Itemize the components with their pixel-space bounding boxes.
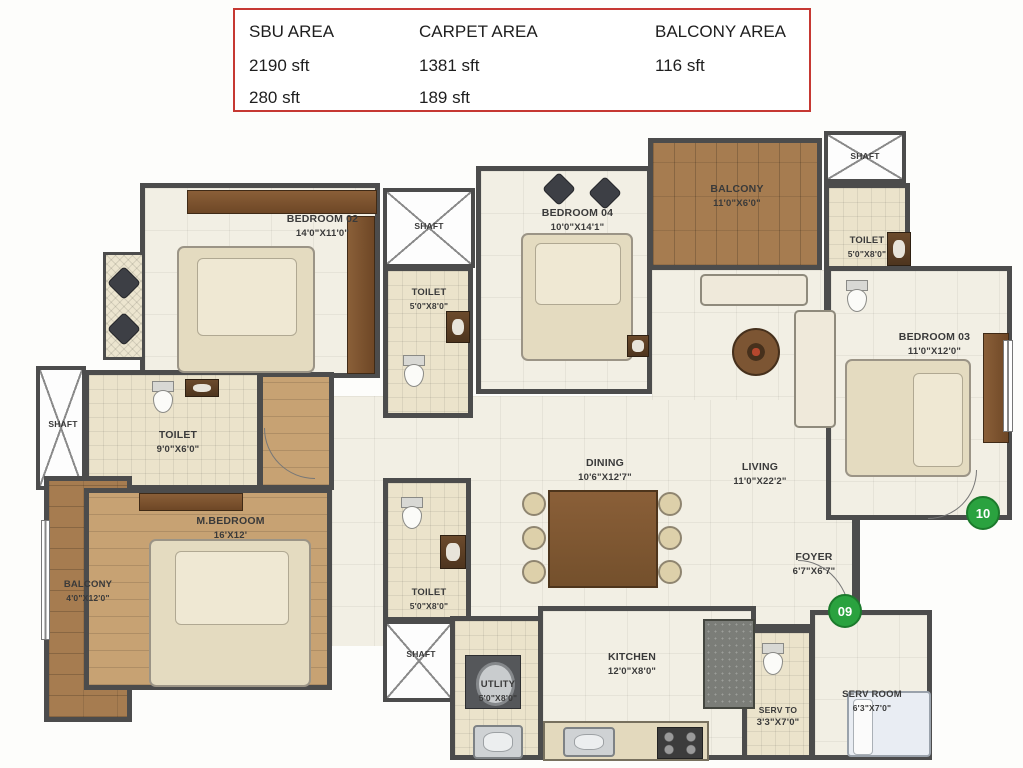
legend-header-balcony: BALCONY AREA xyxy=(655,22,786,42)
seat-cushion xyxy=(107,312,141,346)
unit-marker-09: 09 xyxy=(828,594,862,628)
sofa xyxy=(700,274,808,306)
kitchen-counter xyxy=(703,619,755,709)
sofa xyxy=(794,310,836,428)
bed-pillow xyxy=(197,258,297,336)
utility-label: UTLITY 5'0"X8'0" xyxy=(448,678,548,704)
mbedroom-label: M.BEDROOM 16'X12' xyxy=(158,514,303,543)
dining-chair xyxy=(658,526,682,550)
toilet-fixture xyxy=(151,381,173,413)
bedroom04-label: BEDROOM 04 10'0"X14'1" xyxy=(505,206,650,235)
kitchen-label: KITCHEN 12'0"X8'0" xyxy=(562,650,702,679)
foyer-label: FOYER 6'7"X6'7" xyxy=(744,550,884,579)
room-kitchen xyxy=(538,606,756,760)
area-legend-box: SBU AREA CARPET AREA BALCONY AREA 2190 s… xyxy=(233,8,811,112)
toilet-top-right-label: TOILET 5'0"X8'0" xyxy=(826,234,908,260)
toilet-fixture xyxy=(400,497,422,529)
dining-chair xyxy=(658,492,682,516)
living-label: LIVING 11'0"X22'2" xyxy=(690,460,830,489)
bed xyxy=(521,233,633,361)
bedroom02-label: BEDROOM 02 14'0"X11'0" xyxy=(250,212,395,241)
legend-sbu-value1: 2190 sft xyxy=(249,56,310,76)
washbasin xyxy=(185,379,219,397)
toilet-left-label: TOILET 9'0"X6'0" xyxy=(118,428,238,457)
balcony-top-label: BALCONY 11'0"X6'0" xyxy=(672,182,802,211)
serv-toilet-label: SERV TO 3'3"X7'0" xyxy=(742,704,814,730)
bed-cushion xyxy=(542,172,576,206)
legend-balcony-value1: 116 sft xyxy=(655,56,705,76)
toilet-top-mid-label: TOILET 5'0"X8'0" xyxy=(385,286,473,312)
legend-sbu-value2: 280 sft xyxy=(249,88,300,108)
bed xyxy=(149,539,311,687)
serv-room-label: SERV ROOM 6'3"X7'0" xyxy=(812,688,932,714)
coffee-table xyxy=(732,328,780,376)
shaft-bottom xyxy=(383,620,455,702)
shaft-top-right-label: SHAFT xyxy=(830,150,900,162)
legend-header-sbu: SBU AREA xyxy=(249,22,334,42)
washbasin xyxy=(446,311,470,343)
dining-chair xyxy=(522,526,546,550)
unit-marker-10: 10 xyxy=(966,496,1000,530)
dresser xyxy=(139,493,243,511)
stove xyxy=(657,727,703,759)
room-serv-room xyxy=(810,610,932,760)
dining-table xyxy=(548,490,658,588)
wardrobe xyxy=(187,190,377,214)
legend-header-carpet: CARPET AREA xyxy=(419,22,538,42)
bed xyxy=(845,359,971,477)
shaft-bottom-label: SHAFT xyxy=(386,648,456,660)
dining-label: DINING 10'6"X12'7" xyxy=(535,456,675,485)
toilet-fixture xyxy=(402,355,424,387)
shaft-left-label: SHAFT xyxy=(40,418,86,430)
bed-pillow xyxy=(175,551,289,625)
bed xyxy=(177,246,315,373)
toilet-fixture xyxy=(761,643,783,675)
utility-sink xyxy=(473,725,523,759)
washbasin xyxy=(440,535,466,569)
bedroom03-label: BEDROOM 03 11'0"X12'0" xyxy=(862,330,1007,359)
dining-chair xyxy=(522,560,546,584)
toilet-mid-label: TOILET 5'0"X8'0" xyxy=(385,586,473,612)
bay-window-seat xyxy=(103,252,145,360)
floor-plan-canvas: SBU AREA CARPET AREA BALCONY AREA 2190 s… xyxy=(0,0,1023,768)
toilet-fixture xyxy=(845,280,867,312)
dining-chair xyxy=(658,560,682,584)
kitchen-sink xyxy=(563,727,615,757)
shaft-top-label: SHAFT xyxy=(394,220,464,232)
bed-pillow xyxy=(913,373,963,467)
bed-pillow xyxy=(535,243,621,305)
legend-carpet-value2: 189 sft xyxy=(419,88,470,108)
seat-cushion xyxy=(107,266,141,300)
bed-cushion xyxy=(588,176,622,210)
side-table xyxy=(627,335,649,357)
dining-chair xyxy=(522,492,546,516)
room-bedroom04 xyxy=(476,166,652,394)
legend-carpet-value1: 1381 sft xyxy=(419,56,480,76)
balcony-left-label: BALCONY 4'0"X12'0" xyxy=(48,578,128,604)
